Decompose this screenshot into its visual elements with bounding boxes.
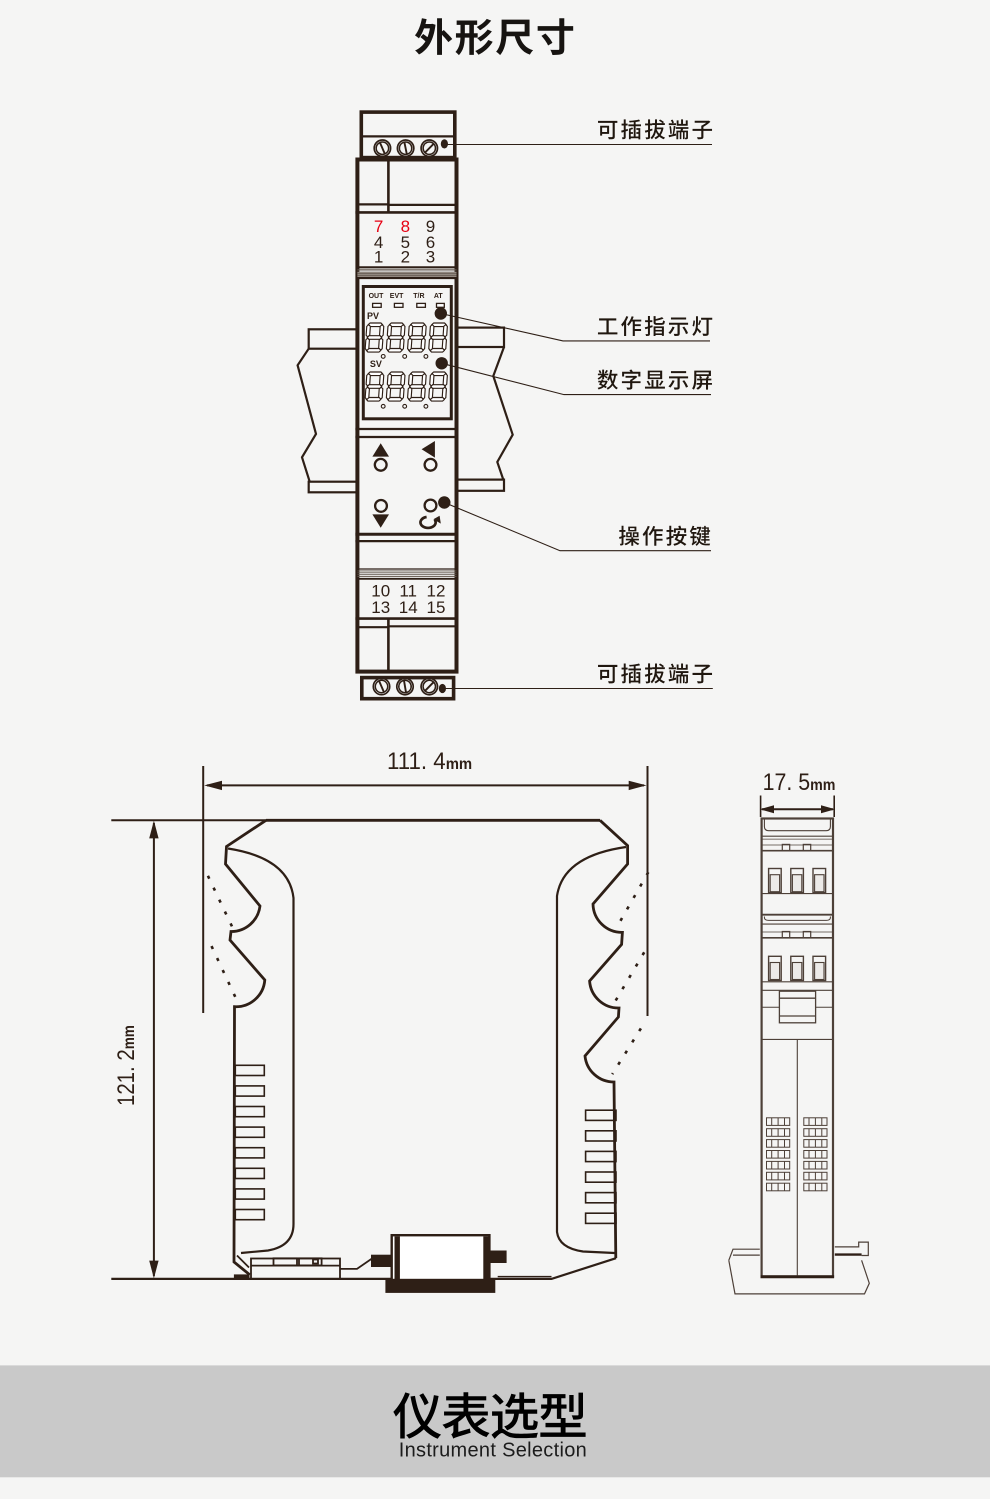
svg-text:14: 14 <box>399 598 418 617</box>
svg-text:T/R: T/R <box>413 293 424 300</box>
svg-text:13: 13 <box>371 598 390 617</box>
svg-text:1: 1 <box>374 248 383 267</box>
svg-text:OUT: OUT <box>369 293 385 300</box>
svg-text:SV: SV <box>370 359 382 369</box>
svg-text:AT: AT <box>434 293 444 300</box>
svg-text:15: 15 <box>427 598 446 617</box>
svg-text:EVT: EVT <box>390 293 404 300</box>
svg-text:Instrument Selection: Instrument Selection <box>399 1440 587 1462</box>
svg-text:2: 2 <box>401 248 410 267</box>
svg-text:3: 3 <box>426 248 435 267</box>
svg-text:PV: PV <box>367 311 379 321</box>
